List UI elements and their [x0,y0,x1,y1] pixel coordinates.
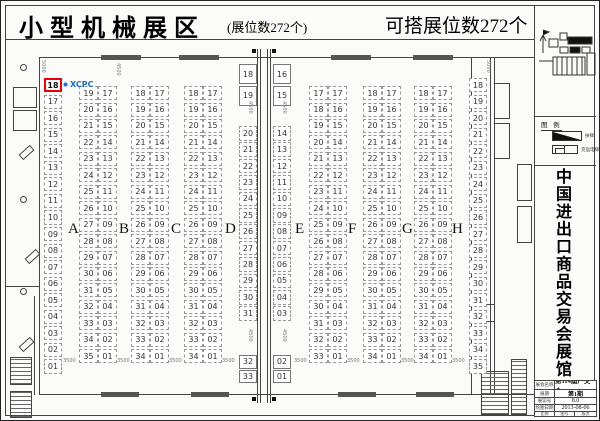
booth-cell[interactable]: 30 [79,267,98,281]
booth-cell[interactable]: 31 [184,300,203,314]
booth-cell[interactable]: 35 [79,349,98,363]
booth-cell[interactable]: 17 [382,86,401,100]
section-label-c: C [171,221,181,238]
booth-cell[interactable]: 34 [79,333,98,347]
booth-cell[interactable]: 25 [239,208,257,223]
booth-cell[interactable]: 11 [150,185,169,199]
booth-cell[interactable]: 19 [184,103,203,117]
booth-cell[interactable]: 30 [363,283,382,297]
booth-cell[interactable]: 10 [328,201,347,215]
dimension-label: 3500 [294,358,307,364]
booth-cell[interactable]: 27 [309,251,328,265]
booth-cell[interactable]: 33 [184,333,203,347]
booth-cell[interactable]: 16 [44,111,62,125]
booth-cell[interactable]: 21 [131,135,150,149]
booth-cell[interactable]: 08 [150,234,169,248]
booth-cell[interactable]: 34 [131,349,150,363]
booth-cell[interactable]: 14 [150,135,169,149]
escalator-icon [552,131,582,141]
booth-cell[interactable]: 26 [79,201,98,215]
booth-cell[interactable]: 04 [150,300,169,314]
booth-cell[interactable]: 18 [184,86,203,100]
booth-cell[interactable]: 04 [433,300,452,314]
booth-cell[interactable]: 05 [382,283,401,297]
xcpc-logo: XCPC [62,80,94,89]
booth-cell[interactable]: 22 [184,152,203,166]
booth-cell[interactable]: 34 [363,349,382,363]
booth-cell[interactable]: 26 [309,234,328,248]
booth-cell[interactable]: 06 [98,267,117,281]
booth-cell[interactable]: 26 [131,218,150,232]
booth-cell[interactable]: 01 [382,349,401,363]
booth-cell[interactable]: 34 [469,343,487,357]
booth-cell[interactable]: 02 [328,333,347,347]
booth-cell[interactable]: 20 [363,119,382,133]
column-pillar [20,64,27,71]
booth-cell[interactable]: 20 [239,126,257,141]
booth-cell[interactable]: 09 [44,227,62,241]
booth-cell[interactable]: 30 [239,290,257,305]
booth-cell[interactable]: 11 [44,194,62,208]
booth-cell[interactable]: 25 [131,201,150,215]
booth-cell[interactable]: 21 [79,119,98,133]
booth-cell[interactable]: 18 [239,64,257,84]
booth-cell[interactable]: 25 [309,218,328,232]
booth-cell[interactable]: 29 [184,267,203,281]
booth-cell[interactable]: 28 [79,234,98,248]
dimension-label: 3500 [169,358,182,364]
booth-cell[interactable]: 05 [328,283,347,297]
booth-cell[interactable]: 09 [433,218,452,232]
booth-cell[interactable]: 08 [328,234,347,248]
booth-cell[interactable]: 29 [469,260,487,274]
booth-cell[interactable]: 21 [239,142,257,157]
booth-cell[interactable]: 15 [44,128,62,142]
aisle-door-marker [252,49,256,53]
section-label-h: H [452,221,463,238]
booth-cell[interactable]: 26 [239,224,257,239]
booth-cell[interactable]: 22 [363,152,382,166]
booth-cell[interactable]: 11 [433,185,452,199]
booth-cell[interactable]: 30 [184,283,203,297]
booth-cell[interactable]: 03 [433,316,452,330]
dimension-label: 4500 [115,63,121,76]
booth-cell[interactable]: 15 [150,119,169,133]
booth-cell[interactable]: 13 [150,152,169,166]
booth-cell[interactable]: 23 [414,168,433,182]
booth-cell[interactable]: 12 [273,159,291,174]
booth-cell[interactable]: 20 [131,119,150,133]
booth-cell[interactable]: 31 [363,300,382,314]
aisle-door-marker [272,49,276,53]
booth-count-note: (展位数272个) [227,17,307,36]
booth-cell[interactable]: 25 [414,201,433,215]
booth-cell[interactable]: 26 [363,218,382,232]
booth-cell[interactable]: 20 [469,111,487,125]
booth-cell[interactable]: 32 [309,333,328,347]
booth-cell[interactable]: 18 [309,103,328,117]
booth-cell[interactable]: 24 [309,201,328,215]
booth-cell[interactable]: 02 [203,333,222,347]
booth-cell[interactable]: 17 [309,86,328,100]
booth-cell[interactable]: 28 [239,257,257,272]
booth-cell[interactable]: 06 [273,257,291,272]
booth-cell[interactable]: 25 [79,185,98,199]
booth-cell[interactable]: 15 [203,119,222,133]
booth-cell[interactable]: 02 [98,333,117,347]
booth-cell[interactable]: 12 [328,168,347,182]
booth-cell[interactable]: 06 [328,267,347,281]
booth-cell[interactable]: 05 [203,283,222,297]
booth-cell[interactable]: 10 [98,201,117,215]
booth-cell[interactable]: 18 [469,78,487,92]
booth-cell[interactable]: 18 [414,86,433,100]
booth-cell[interactable]: 27 [131,234,150,248]
booth-cell[interactable]: 19 [309,119,328,133]
booth-cell[interactable]: 15 [328,119,347,133]
booth-cell[interactable]: 13 [98,152,117,166]
booth-cell[interactable]: 09 [203,218,222,232]
booth-cell[interactable]: 33 [309,349,328,363]
booth-cell[interactable]: 07 [98,251,117,265]
booth-cell[interactable]: 04 [328,300,347,314]
booth-cell[interactable]: 20 [184,119,203,133]
booth-cell[interactable]: 15 [382,119,401,133]
left-corridor-door [13,110,37,131]
booth-cell[interactable]: 29 [239,274,257,289]
booth-cell[interactable]: 27 [363,234,382,248]
booth-cell[interactable]: 06 [203,267,222,281]
booth-cell[interactable]: 13 [203,152,222,166]
booth-cell[interactable]: 09 [150,218,169,232]
booth-cell[interactable]: 27 [79,218,98,232]
top-door-bar [331,55,371,60]
booth-cell[interactable]: 28 [363,251,382,265]
booth-cell[interactable]: 17 [150,86,169,100]
booth-cell[interactable]: 28 [309,267,328,281]
booth-cell[interactable]: 13 [382,152,401,166]
booth-cell[interactable]: 20 [79,103,98,117]
booth-cell[interactable]: 01 [98,349,117,363]
booth-cell[interactable]: 06 [382,267,401,281]
sidebar-section-line [534,116,596,117]
booth-cell[interactable]: 34 [414,349,433,363]
xcpc-logo-icon [62,81,69,88]
booth-cell[interactable]: 04 [44,310,62,324]
booth-cell[interactable]: 12 [433,168,452,182]
booth-cell[interactable]: 27 [184,234,203,248]
booth-cell[interactable]: 12 [382,168,401,182]
booth-cell[interactable]: 13 [433,152,452,166]
booth-cell[interactable]: 29 [131,267,150,281]
booth-cell[interactable]: 05 [273,274,291,289]
booth-cell[interactable]: 12 [150,168,169,182]
booth-cell[interactable]: 28 [131,251,150,265]
booth-cell[interactable]: 17 [433,86,452,100]
booth-cell[interactable]: 03 [273,306,291,321]
booth-cell[interactable]: 15 [433,119,452,133]
booth-cell[interactable]: 23 [363,168,382,182]
booth-cell[interactable]: 24 [131,185,150,199]
booth-cell[interactable]: 14 [98,135,117,149]
booth-cell[interactable]: 25 [184,201,203,215]
floorplan-page: 小型机械展区 (展位数272个) 可搭展位数272个 1817161514131… [0,0,600,421]
booth-cell[interactable]: 07 [433,251,452,265]
booth-cell[interactable]: 16 [150,103,169,117]
booth-cell[interactable]: 31 [414,300,433,314]
booth-cell[interactable]: 07 [273,241,291,256]
booth-cell[interactable]: 11 [273,175,291,190]
booth-cell[interactable]: 24 [239,192,257,207]
booth-cell[interactable]: 26 [184,218,203,232]
freight-elevator [517,206,532,243]
booth-cell[interactable]: 31 [131,300,150,314]
booth-cell[interactable]: 23 [184,168,203,182]
booth-cell[interactable]: 10 [203,201,222,215]
booth-cell[interactable]: 07 [328,251,347,265]
booth-cell[interactable]: 03 [44,326,62,340]
booth-cell[interactable]: 11 [98,185,117,199]
booth-cell[interactable]: 21 [184,135,203,149]
booth-cell[interactable]: 21 [309,152,328,166]
booth-cell[interactable]: 24 [184,185,203,199]
bottom-door-bar [338,392,376,397]
stairs [10,391,32,418]
booth-cell[interactable]: 22 [309,168,328,182]
booth-cell[interactable]: 08 [433,234,452,248]
booth-cell[interactable]: 01 [150,349,169,363]
booth-cell[interactable]: 08 [203,234,222,248]
booth-cell[interactable]: 20 [414,119,433,133]
booth-cell[interactable]: 02 [273,355,291,369]
booth-cell[interactable]: 26 [414,218,433,232]
stairs [511,359,527,415]
booth-cell[interactable]: 24 [414,185,433,199]
booth-cell[interactable]: 13 [273,142,291,157]
booth-cell[interactable]: 31 [239,306,257,321]
booth-cell[interactable]: 30 [131,283,150,297]
booth-cell[interactable]: 23 [239,175,257,190]
booth-cell[interactable]: 05 [433,283,452,297]
booth-cell[interactable]: 21 [363,135,382,149]
booth-cell[interactable]: 29 [363,267,382,281]
booth-cell[interactable]: 22 [239,159,257,174]
booth-cell[interactable]: 09 [382,218,401,232]
booth-cell[interactable]: 23 [469,161,487,175]
booth-cell[interactable]: 30 [309,300,328,314]
booth-cell[interactable]: 33 [239,370,257,384]
booth-cell[interactable]: 31 [79,283,98,297]
booth-cell[interactable]: 25 [469,194,487,208]
booth-cell[interactable]: 01 [433,349,452,363]
booth-cell[interactable]: 22 [131,152,150,166]
booth-cell[interactable]: 21 [469,128,487,142]
booth-cell[interactable]: 17 [98,86,117,100]
booth-cell[interactable]: 33 [79,316,98,330]
bottom-door-bar [416,392,454,397]
booth-cell[interactable]: 19 [414,103,433,117]
dimension-label: 4500 [281,329,287,342]
booth-cell[interactable]: 03 [203,316,222,330]
booth-cell[interactable]: 10 [382,201,401,215]
booth-cell[interactable]: 33 [469,326,487,340]
dimension-label: 3500 [117,358,130,364]
booth-cell[interactable]: 35 [469,359,487,373]
booth-cell[interactable]: 32 [79,300,98,314]
booth-cell[interactable]: 08 [98,234,117,248]
booth-cell[interactable]: 16 [98,103,117,117]
booth-cell[interactable]: 13 [44,161,62,175]
booth-cell[interactable]: 10 [44,210,62,224]
booth-cell-highlighted[interactable]: 18 [44,78,62,92]
dimension-label: 4500 [281,101,287,114]
booth-cell[interactable]: 27 [469,227,487,241]
dimension-label: 4500 [247,329,253,342]
booth-cell[interactable]: 28 [184,251,203,265]
booth-cell[interactable]: 19 [131,103,150,117]
booth-cell[interactable]: 07 [44,260,62,274]
booth-cell[interactable]: 31 [469,293,487,307]
booth-cell[interactable]: 02 [150,333,169,347]
booth-cell[interactable]: 17 [203,86,222,100]
booth-cell[interactable]: 14 [203,135,222,149]
booth-cell[interactable]: 24 [363,185,382,199]
booth-cell[interactable]: 10 [273,192,291,207]
booth-cell[interactable]: 04 [98,300,117,314]
booth-cell[interactable]: 33 [414,333,433,347]
booth-cell[interactable]: 23 [79,152,98,166]
booth-cell[interactable]: 06 [433,267,452,281]
booth-cell[interactable]: 29 [414,267,433,281]
booth-cell[interactable]: 24 [79,168,98,182]
booth-cell[interactable]: 05 [44,293,62,307]
booth-cell[interactable]: 16 [328,103,347,117]
booth-cell[interactable]: 08 [273,224,291,239]
booth-cell[interactable]: 31 [309,316,328,330]
booth-cell[interactable]: 26 [469,210,487,224]
booth-cell[interactable]: 01 [203,349,222,363]
booth-cell[interactable]: 15 [98,119,117,133]
booth-cell[interactable]: 22 [414,152,433,166]
booth-cell[interactable]: 30 [414,283,433,297]
booth-cell[interactable]: 23 [309,185,328,199]
right-corridor-door [494,123,510,159]
booth-cell[interactable]: 14 [273,126,291,141]
booth-cell[interactable]: 03 [382,316,401,330]
booth-cell[interactable]: 12 [203,168,222,182]
booth-cell[interactable]: 27 [239,241,257,256]
booth-cell[interactable]: 14 [44,144,62,158]
booth-cell[interactable]: 28 [469,244,487,258]
booth-cell[interactable]: 32 [469,310,487,324]
titleblock-footer-cell: 图号 [554,411,575,417]
booth-cell[interactable]: 06 [44,277,62,291]
booth-cell[interactable]: 07 [150,251,169,265]
booth-cell[interactable]: 02 [382,333,401,347]
booth-cell[interactable]: 33 [363,333,382,347]
booth-cell[interactable]: 03 [150,316,169,330]
booth-cell[interactable]: 13 [328,152,347,166]
booth-cell[interactable]: 02 [433,333,452,347]
booth-cell[interactable]: 28 [414,251,433,265]
booth-cell[interactable]: 10 [433,201,452,215]
booth-cell[interactable]: 29 [309,283,328,297]
north-arrow [540,35,546,53]
booth-cell[interactable]: 18 [363,86,382,100]
booth-cell[interactable]: 05 [150,283,169,297]
booth-cell[interactable]: 23 [131,168,150,182]
booth-cell[interactable]: 11 [328,185,347,199]
booth-cell[interactable]: 16 [203,103,222,117]
dimension-label: 4500 [247,101,253,114]
booth-cell[interactable]: 12 [44,177,62,191]
booth-cell[interactable]: 32 [414,316,433,330]
booth-cell[interactable]: 32 [363,316,382,330]
booth-cell[interactable]: 22 [79,135,98,149]
booth-cell[interactable]: 08 [382,234,401,248]
booth-cell[interactable]: 09 [273,208,291,223]
booth-cell[interactable]: 14 [433,135,452,149]
booth-cell[interactable]: 18 [131,86,150,100]
booth-cell[interactable]: 04 [382,300,401,314]
booth-cell[interactable]: 27 [414,234,433,248]
booth-cell[interactable]: 04 [273,290,291,305]
booth-cell[interactable]: 09 [328,218,347,232]
booth-cell[interactable]: 05 [98,283,117,297]
booth-cell[interactable]: 14 [382,135,401,149]
booth-cell[interactable]: 09 [98,218,117,232]
booth-cell[interactable]: 14 [328,135,347,149]
booth-cell[interactable]: 01 [328,349,347,363]
booth-cell[interactable]: 32 [131,316,150,330]
booth-cell[interactable]: 12 [98,168,117,182]
booth-cell[interactable]: 25 [363,201,382,215]
booth-cell[interactable]: 21 [414,135,433,149]
booth-cell[interactable]: 34 [184,349,203,363]
booth-cell[interactable]: 17 [44,95,62,109]
booth-cell[interactable]: 11 [382,185,401,199]
booth-cell[interactable]: 11 [203,185,222,199]
booth-cell[interactable]: 24 [469,177,487,191]
booth-cell[interactable]: 08 [44,244,62,258]
booth-cell[interactable]: 07 [203,251,222,265]
central-aisle-line [267,49,268,403]
booth-cell[interactable]: 16 [273,64,291,84]
booth-cell[interactable]: 29 [79,251,98,265]
booth-cell[interactable]: 10 [150,201,169,215]
booth-cell[interactable]: 04 [203,300,222,314]
booth-cell[interactable]: 33 [131,333,150,347]
booth-cell[interactable]: 20 [309,135,328,149]
booth-cell[interactable]: 17 [328,86,347,100]
booth-cell[interactable]: 03 [328,316,347,330]
booth-cell[interactable]: 03 [98,316,117,330]
booth-cell[interactable]: 19 [363,103,382,117]
booth-cell[interactable]: 32 [184,316,203,330]
booth-cell[interactable]: 01 [44,359,62,373]
booth-cell[interactable]: 02 [44,343,62,357]
booth-cell[interactable]: 19 [469,95,487,109]
booth-cell[interactable]: 32 [239,355,257,369]
titleblock-footer-cell: 比例 [534,411,555,417]
booth-cell[interactable]: 06 [150,267,169,281]
booth-cell[interactable]: 22 [469,144,487,158]
booth-cell[interactable]: 01 [273,370,291,384]
booth-cell[interactable]: 30 [469,277,487,291]
booth-cell[interactable]: 16 [433,103,452,117]
booth-cell[interactable]: 07 [382,251,401,265]
booth-cell[interactable]: 16 [382,103,401,117]
